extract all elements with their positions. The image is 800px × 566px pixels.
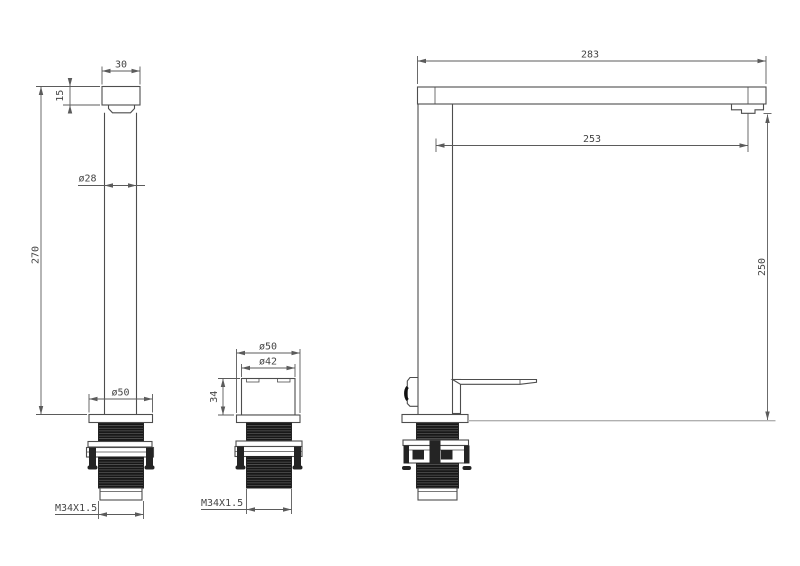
front-spout-width-label: 30 — [115, 60, 127, 71]
side-spout-reach-label: 253 — [583, 134, 601, 145]
front-cap-height-label: 15 — [55, 90, 66, 102]
mounting-flange — [89, 415, 153, 423]
shank-nut-wing-right — [294, 447, 301, 467]
shank-body-diameter-label: ø42 — [259, 357, 277, 368]
handle-base — [453, 380, 461, 414]
washer — [88, 442, 152, 448]
shank-flange-diameter-label: ø50 — [259, 342, 277, 353]
thread-lower — [99, 457, 144, 488]
front-base-diameter-label: ø50 — [111, 388, 129, 399]
side-spout-height-label: 250 — [757, 258, 768, 276]
shank-end — [100, 488, 142, 500]
side-nut-wing-right — [464, 446, 470, 464]
shank-nut-foot-right — [293, 466, 303, 470]
side-nut-slot-left — [413, 450, 425, 460]
nut-foot-left — [88, 466, 98, 470]
shank-body — [242, 379, 296, 416]
nut-wing-right — [146, 448, 153, 467]
shank-thread-upper — [247, 423, 292, 441]
faucet-technical-drawing: 30 15 270 ø28 — [0, 0, 800, 566]
shank-washer — [236, 441, 302, 447]
front-overall-height-label: 270 — [31, 246, 42, 264]
side-nut-slot-right — [441, 450, 453, 460]
drawing-canvas: 30 15 270 ø28 — [0, 0, 800, 566]
front-thread-spec-label: M34X1.5 — [55, 503, 97, 514]
shank-nut-wing-left — [237, 447, 244, 467]
side-nut-foot-left — [402, 466, 411, 470]
side-flange — [402, 415, 468, 423]
thread-upper — [99, 424, 144, 442]
side-thread-upper — [417, 424, 459, 441]
shank-thread-lower — [247, 457, 292, 489]
shank-nut-foot-left — [236, 466, 246, 470]
shank-flange — [237, 415, 301, 423]
shank-body-height-label: 34 — [209, 391, 220, 403]
side-nut-foot-right — [463, 466, 472, 470]
nut-foot-right — [145, 466, 155, 470]
side-thread-lower — [417, 464, 459, 489]
handle-lever — [453, 380, 537, 385]
side-nut-wing-left — [404, 446, 410, 464]
front-body-diameter-label: ø28 — [78, 174, 96, 185]
nut-wing-left — [89, 448, 96, 467]
side-shank-end — [418, 488, 457, 500]
side-overall-reach-label: 283 — [581, 50, 599, 61]
shank-thread-spec-label: M34X1.5 — [201, 498, 243, 509]
